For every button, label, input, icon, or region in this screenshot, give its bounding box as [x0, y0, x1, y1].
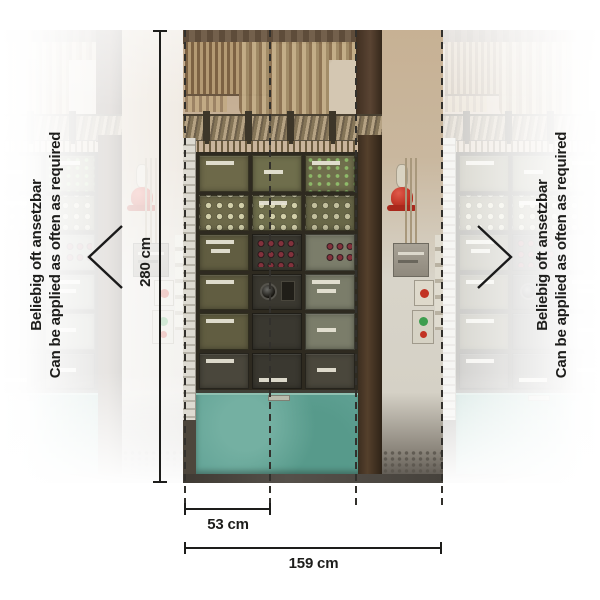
conduit-pipes-left-lower — [185, 96, 227, 112]
fuse-module — [199, 353, 249, 390]
fuse-module — [305, 313, 355, 350]
fuse-module — [199, 195, 249, 232]
fuse-module — [252, 274, 302, 311]
fuse-module — [199, 274, 249, 311]
strip-width-tick-left — [184, 503, 186, 515]
teal-lower-panel — [196, 390, 362, 474]
fuse-module — [199, 234, 249, 271]
height-dimension-cap-bottom — [153, 481, 167, 483]
motif-slot — [183, 30, 443, 483]
chevron-right-icon — [476, 224, 514, 290]
chevron-left-icon — [86, 224, 124, 290]
fuse-module — [252, 195, 302, 232]
cable-bracket — [329, 111, 336, 144]
strip-width-tick-right — [269, 503, 271, 515]
fuse-cabinet — [196, 152, 358, 392]
switch-box-red — [414, 280, 434, 306]
cable-bracket — [203, 111, 210, 144]
strip-width-dimension-line — [185, 508, 271, 510]
fuse-module — [199, 313, 249, 350]
cable-bracket — [287, 111, 294, 144]
fuse-module — [252, 313, 302, 350]
repeat-note-left-de: Beliebig oft ansetzbar — [27, 104, 46, 406]
repeat-note-left: Beliebig oft ansetzbar Can be applied as… — [27, 104, 65, 406]
product-photo-electrical-panel — [183, 30, 443, 483]
repeat-note-right-en: Can be applied as often as required — [552, 104, 571, 406]
height-dimension-line — [159, 30, 161, 483]
fuse-module — [305, 234, 355, 271]
switch-box-green — [412, 310, 434, 344]
repeat-note-right-de: Beliebig oft ansetzbar — [533, 104, 552, 406]
repeat-note-left-en: Can be applied as often as required — [46, 104, 65, 406]
fuse-module — [305, 195, 355, 232]
panel-latch — [268, 395, 290, 401]
total-width-tick-right — [440, 542, 442, 554]
cable-bracket — [245, 111, 252, 144]
total-width-dimension-line — [185, 547, 442, 549]
fuse-module — [305, 353, 355, 390]
fuse-module — [305, 274, 355, 311]
junction-box — [393, 243, 429, 277]
fuse-module — [199, 155, 249, 192]
floor-strip — [183, 474, 443, 483]
dark-wood-beam — [358, 135, 382, 483]
fuse-module — [252, 353, 302, 390]
repeat-note-right: Beliebig oft ansetzbar Can be applied as… — [533, 104, 571, 406]
repeat-guide-line — [441, 30, 443, 506]
height-dimension-cap-top — [153, 30, 167, 32]
repeat-guide-line — [184, 30, 186, 506]
fuse-module — [252, 234, 302, 271]
fade-overlay-right — [443, 0, 600, 600]
fuse-module — [252, 155, 302, 192]
repeat-guide-line — [269, 30, 271, 506]
total-width-label: 159 cm — [185, 555, 442, 572]
strip-width-label: 53 cm — [185, 516, 271, 533]
repeat-guide-line — [355, 30, 357, 506]
total-width-tick-left — [184, 542, 186, 554]
wall-conduit — [405, 158, 419, 246]
fuse-module — [305, 155, 355, 192]
product-image: 280 cm 53 cm 159 cm Beliebig oft ansetzb… — [0, 0, 600, 600]
height-dimension-label: 280 cm — [137, 217, 155, 307]
